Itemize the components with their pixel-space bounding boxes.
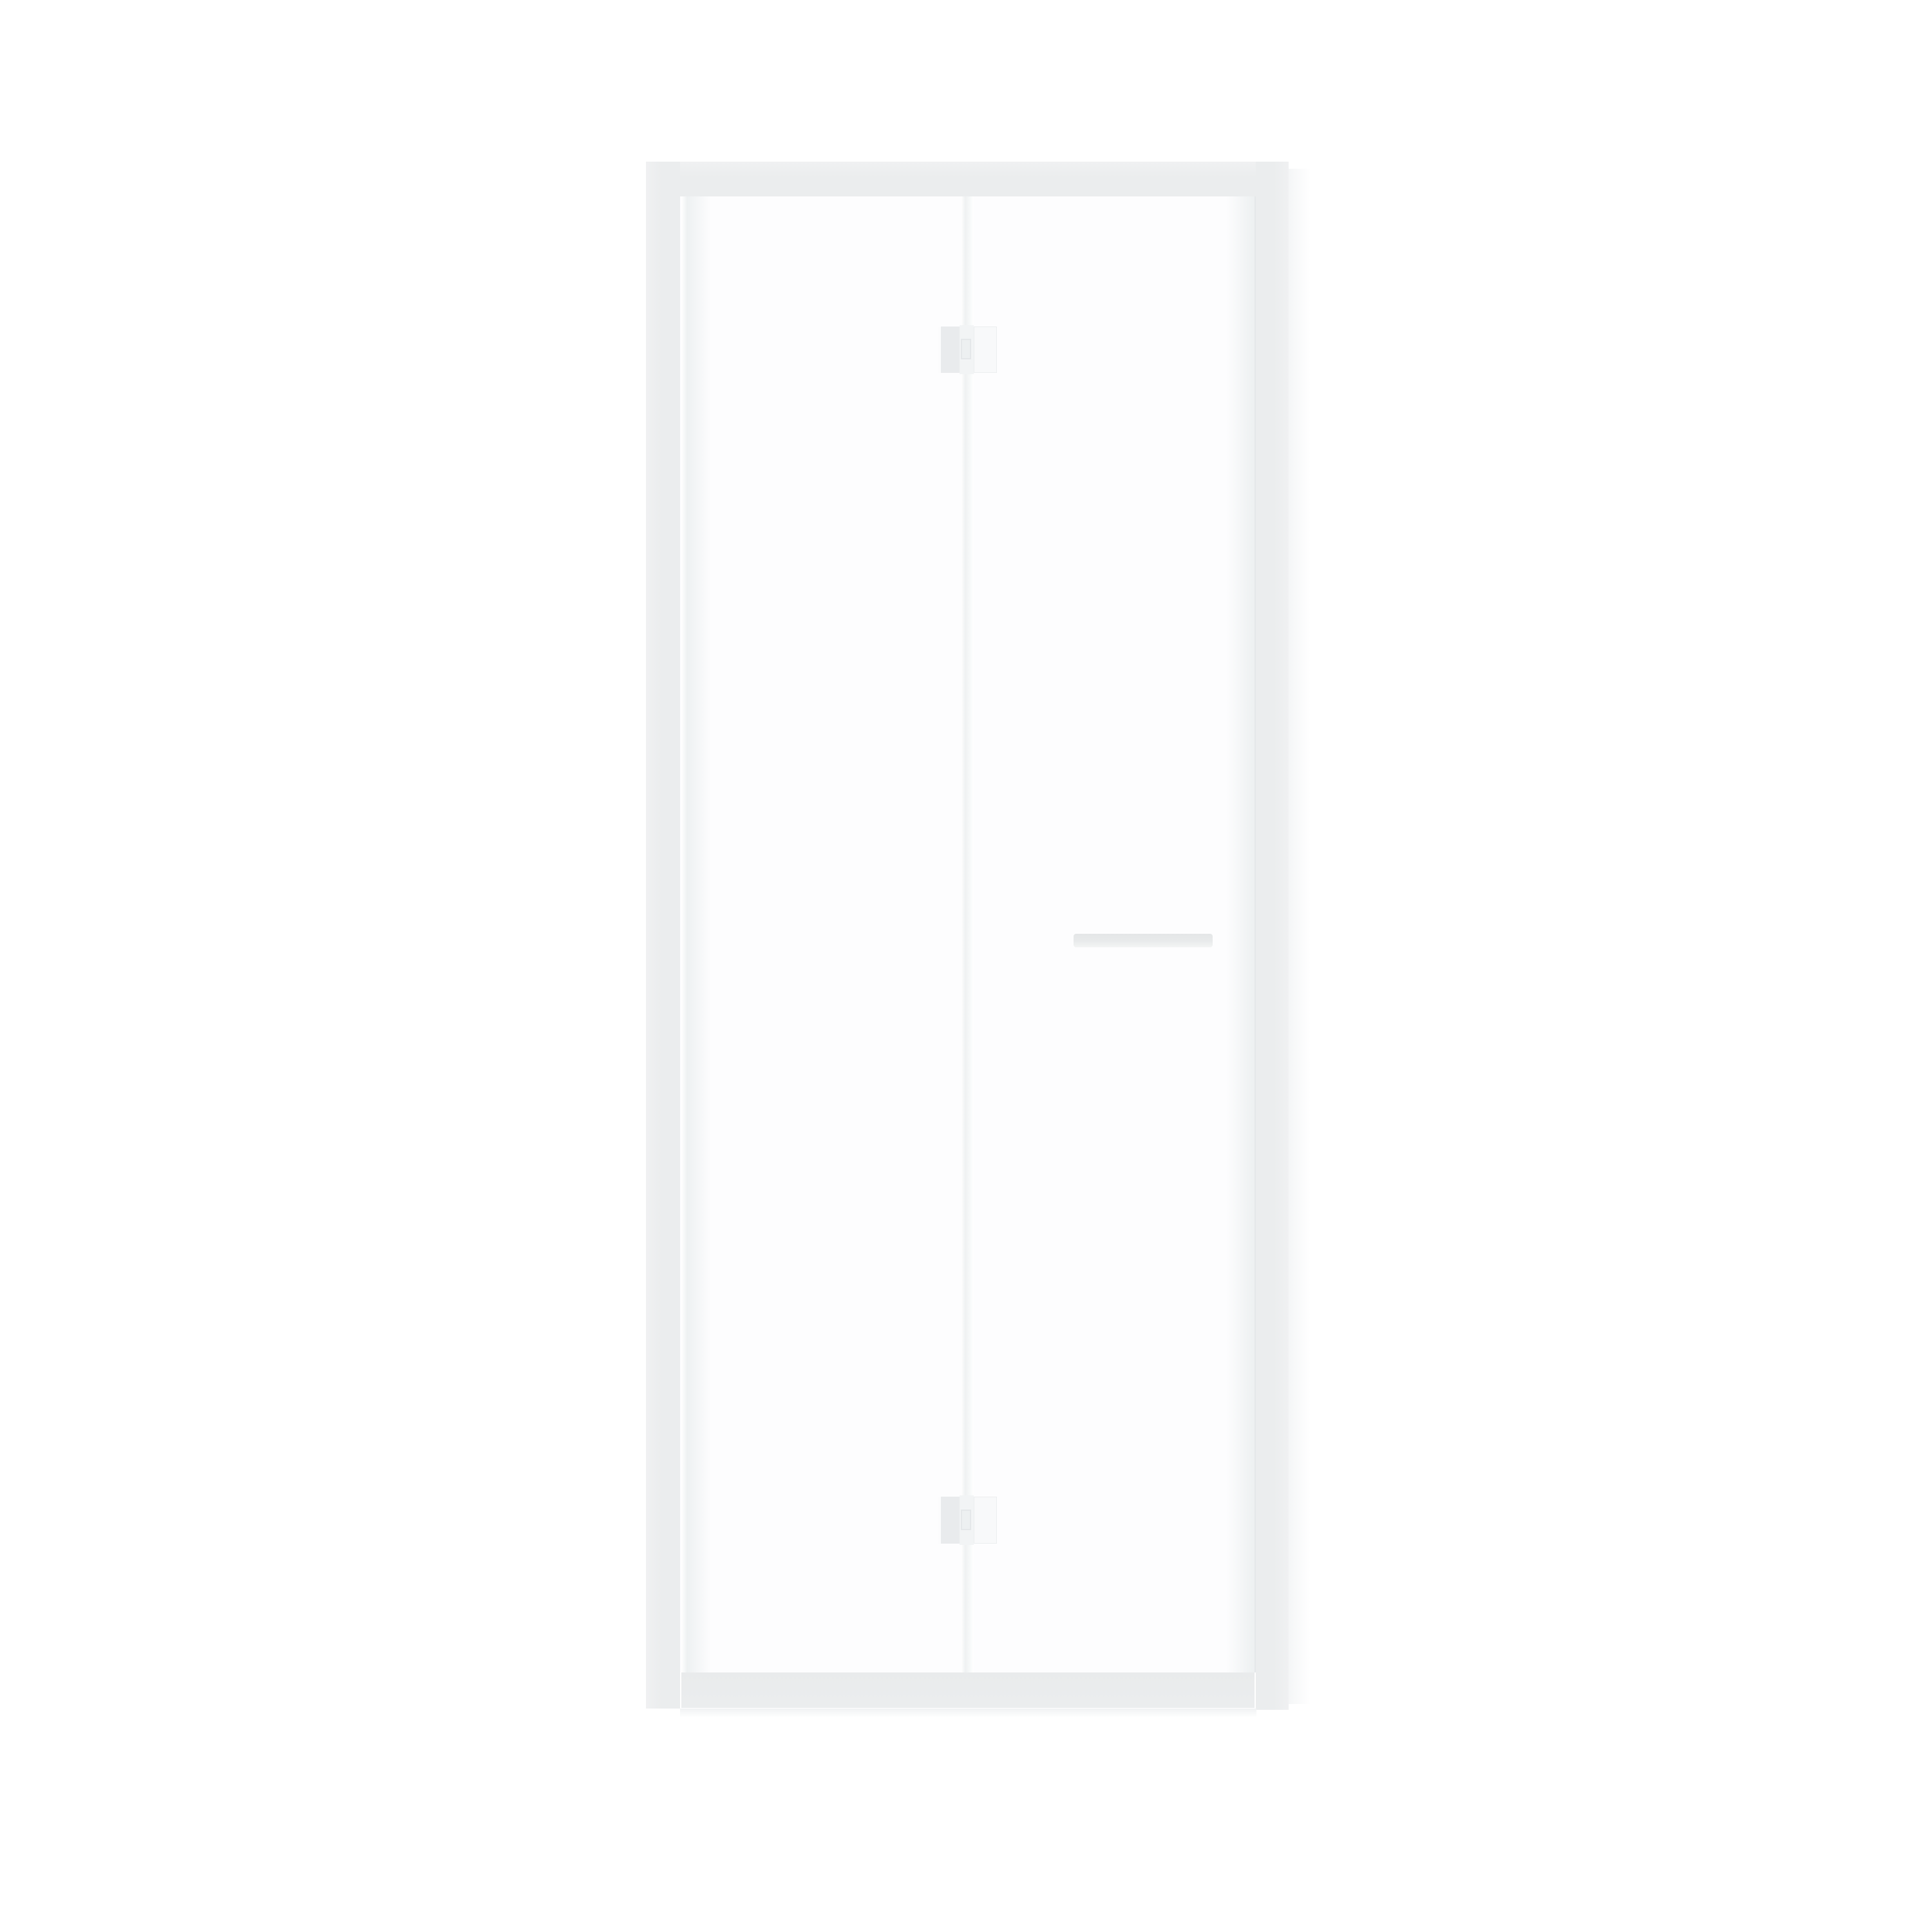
fold-hinge-top — [938, 327, 997, 373]
hinge-knuckle — [960, 1495, 974, 1545]
hinge-plate-right — [974, 1497, 997, 1544]
floor-shadow — [680, 1709, 1256, 1718]
hinge-pin — [961, 339, 971, 359]
hinge-plate-right — [974, 327, 997, 373]
frame-bottom-sill — [681, 1672, 1255, 1708]
glass-edge-highlight-left — [681, 196, 711, 1672]
glass-panel-left — [680, 196, 961, 1672]
product-photo — [0, 0, 1932, 1932]
hinge-plate-left — [938, 1497, 960, 1544]
fold-hinge-bottom — [938, 1497, 997, 1544]
fold-line — [961, 196, 974, 1672]
glass-edge-highlight-right — [1226, 196, 1256, 1672]
handle-bar — [1074, 934, 1213, 947]
side-shadow — [1289, 169, 1311, 1704]
frame-top-rail — [646, 162, 1289, 196]
hinge-plate-left — [938, 327, 960, 373]
hinge-pin — [961, 1510, 971, 1530]
frame-right-jamb — [1256, 162, 1289, 1710]
frame-left-jamb — [646, 162, 680, 1709]
hinge-knuckle — [960, 325, 974, 374]
